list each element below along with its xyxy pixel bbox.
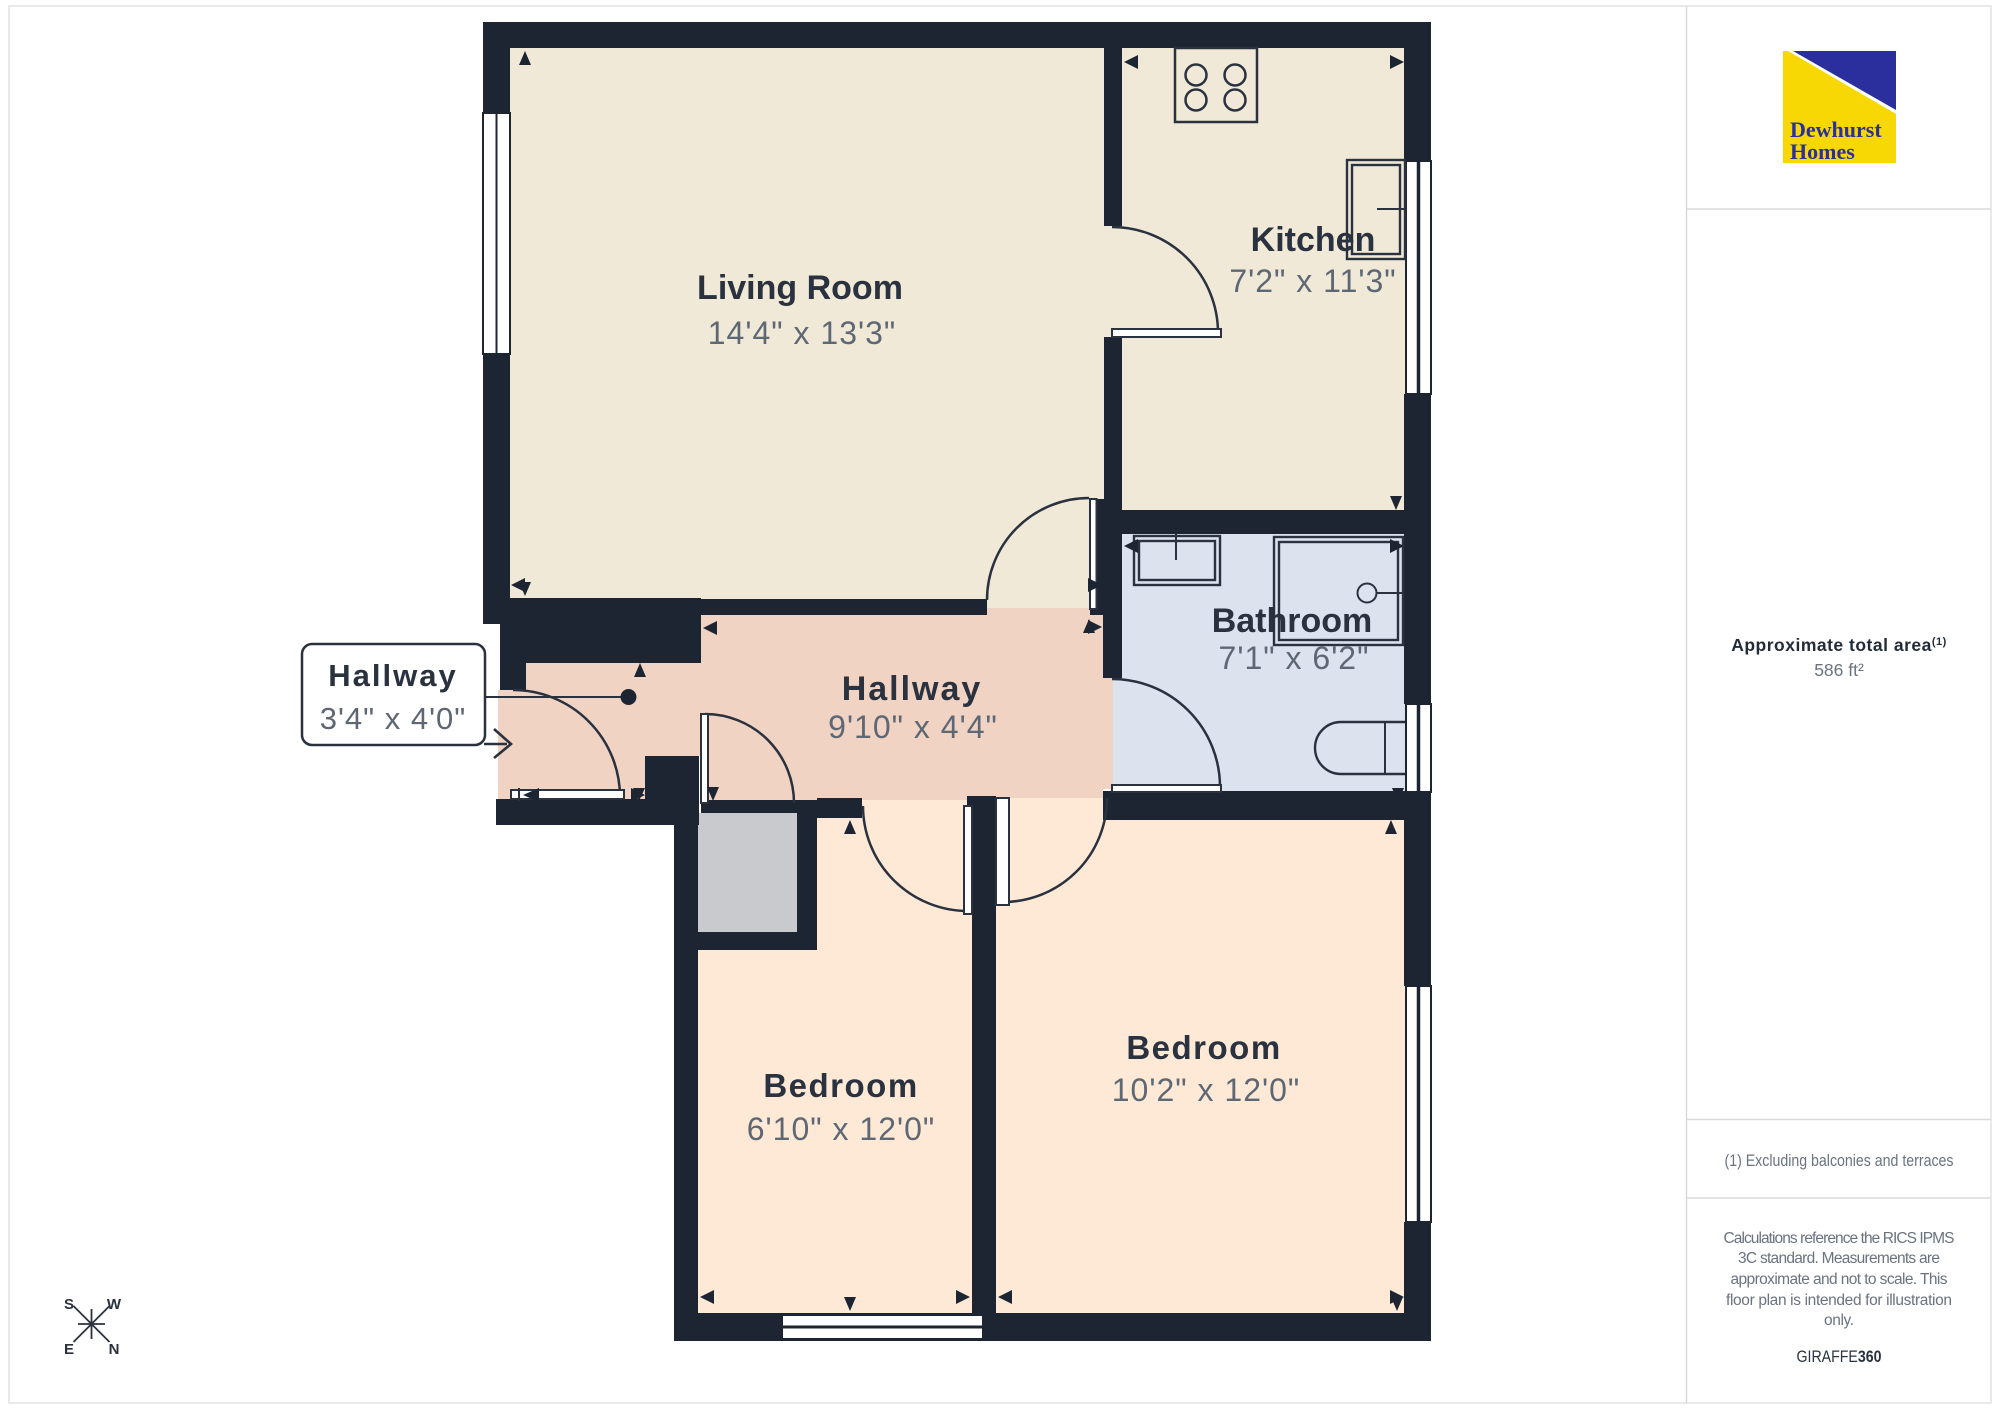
svg-text:Kitchen: Kitchen [1251,221,1376,259]
svg-text:E: E [64,1341,74,1358]
svg-text:N: N [109,1341,120,1358]
svg-text:Bedroom: Bedroom [763,1067,918,1104]
svg-text:6'10" x 12'0": 6'10" x 12'0" [747,1111,936,1147]
svg-text:Hallway: Hallway [328,658,457,693]
svg-text:Hallway: Hallway [842,670,983,708]
svg-text:floor plan is intended for ill: floor plan is intended for illustration [1726,1292,1952,1309]
svg-text:Calculations reference the RIC: Calculations reference the RICS IPMS [1724,1230,1955,1247]
svg-text:S: S [64,1296,74,1313]
svg-text:Bedroom: Bedroom [1126,1029,1281,1066]
svg-text:7'2" x 11'3": 7'2" x 11'3" [1229,263,1396,299]
svg-text:9'10" x 4'4": 9'10" x 4'4" [828,709,998,745]
svg-text:7'1" x 6'2": 7'1" x 6'2" [1219,640,1370,676]
svg-text:3C standard. Measurements are: 3C standard. Measurements are [1738,1250,1940,1267]
svg-text:14'4" x 13'3": 14'4" x 13'3" [708,315,897,351]
svg-text:GIRAFFE360: GIRAFFE360 [1797,1347,1882,1366]
svg-text:only.: only. [1824,1312,1854,1329]
svg-text:Bathroom: Bathroom [1212,602,1373,640]
svg-text:10'2" x 12'0": 10'2" x 12'0" [1112,1072,1301,1108]
svg-text:W: W [107,1296,122,1313]
svg-text:3'4" x 4'0": 3'4" x 4'0" [320,701,467,736]
svg-text:Approximate total area(1): Approximate total area(1) [1731,635,1947,655]
svg-text:approximate and not to scale.: approximate and not to scale. This [1731,1271,1948,1288]
svg-text:Living Room: Living Room [697,269,903,307]
svg-text:Homes: Homes [1790,139,1855,164]
svg-text:(1) Excluding balconies and te: (1) Excluding balconies and terraces [1725,1151,1954,1170]
svg-text:586 ft²: 586 ft² [1814,660,1864,680]
